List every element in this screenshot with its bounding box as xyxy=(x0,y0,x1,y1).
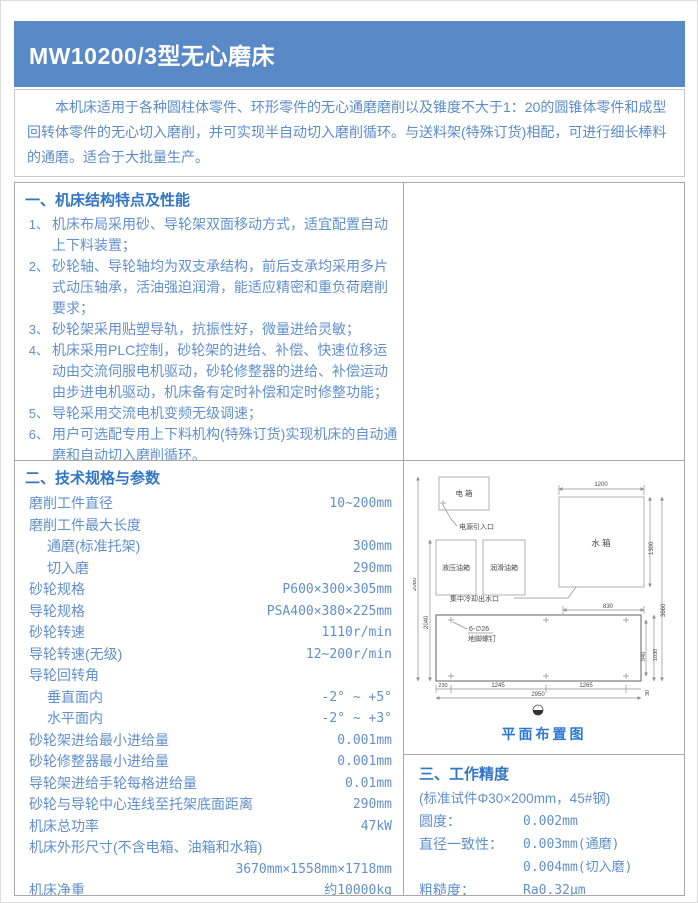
spec-row: 磨削工件直径 10~200mm xyxy=(25,493,392,515)
precision-row: 0.004mm(切入磨) xyxy=(419,856,684,879)
spec-value: PSA400×380×225mm xyxy=(267,601,392,623)
spec-label: 导轮转速(无级) xyxy=(25,644,122,666)
item-number: 6、 xyxy=(25,424,49,461)
item-text: 导轮采用交流电机变频无级调速； xyxy=(52,403,399,424)
spec-label: 导轮规格 xyxy=(25,601,85,623)
lube-tank-label: 润滑油箱 xyxy=(490,563,518,572)
spec-value: 10~200mm xyxy=(329,493,392,515)
spec-row: 导轮回转角 xyxy=(25,665,392,687)
precision-row: 直径一致性： 0.003mm(通磨) xyxy=(419,833,684,856)
precision-value: 0.004mm(切入磨) xyxy=(523,856,632,879)
dim-bolt-left: 230 xyxy=(438,683,447,689)
machine-outline xyxy=(436,615,641,681)
anchor-bolt-label-1: 6-∅26 xyxy=(469,626,489,633)
spec-value: 0.001mm xyxy=(337,751,392,773)
spec-value: -2° ~ +5° xyxy=(322,687,392,709)
dim-machine-height-outer: 1030 xyxy=(653,649,659,661)
hydraulic-tank-label: 液压油箱 xyxy=(442,563,470,572)
page-title: MW10200/3型无心磨床 xyxy=(29,37,275,71)
item-text: 用户可选配专用上下料机构(特殊订货)实现机床的自动通磨和自动切入磨削循环。 xyxy=(52,424,399,461)
list-item: 5、 导轮采用交流电机变频无级调速； xyxy=(25,403,399,424)
precision-label: 圆度： xyxy=(419,810,523,833)
spec-label: 砂轮规格 xyxy=(25,579,85,601)
spec-sheet-page: MW10200/3型无心磨床 本机床适用于各种圆柱体零件、环形零件的无心通磨磨削… xyxy=(0,0,698,903)
spec-value: P600×300×305mm xyxy=(282,579,392,601)
precision-label: 粗糙度： xyxy=(419,879,523,895)
spec-row: 砂轮与导轮中心连线至托架底面距离 290mm xyxy=(25,794,392,816)
spec-row: 水平面内 -2° ~ +3° xyxy=(25,708,392,730)
dim-tank-width: 1200 xyxy=(594,482,608,488)
spec-label: 砂轮修整器最小进给量 xyxy=(25,751,169,773)
spec-label: 砂轮与导轮中心连线至托架底面距离 xyxy=(25,794,253,816)
spec-row: 砂轮转速 1110r/min xyxy=(25,622,392,644)
spec-value: 约10000kg xyxy=(324,880,392,895)
section-precision-heading: 三、工作精度 xyxy=(419,764,684,786)
list-item: 2、 砂轮轴、导轮轴均为双支承结构，前后支承均采用多片式动压轴承，活油强迫润滑，… xyxy=(25,256,399,319)
spec-row: 砂轮规格 P600×300×305mm xyxy=(25,579,392,601)
spec-row: 切入磨 290mm xyxy=(25,558,392,580)
empty-cell xyxy=(404,183,684,461)
spec-label: 砂轮架进给最小进给量 xyxy=(25,730,169,752)
spec-value: 0.01mm xyxy=(345,773,392,795)
spec-row-value-line: 3670mm×1558mm×1718mm xyxy=(25,859,392,881)
dim-outlet-offset: 830 xyxy=(603,604,614,610)
item-number: 2、 xyxy=(25,256,49,319)
spec-value: 290mm xyxy=(353,558,392,580)
list-item: 6、 用户可选配专用上下料机构(特殊订货)实现机床的自动通磨和自动切入磨削循环。 xyxy=(25,424,399,461)
precision-row: 圆度： 0.002mm xyxy=(419,810,684,833)
spec-label: 磨削工件最大长度 xyxy=(25,515,141,537)
precision-value: 0.002mm xyxy=(523,810,578,833)
spec-label: 切入磨 xyxy=(25,558,89,580)
dim-bottom-offset: 30 xyxy=(645,690,651,696)
dim-tank-height: 1300 xyxy=(649,541,655,555)
spec-row: 机床外形尺寸(不含电箱、油箱和水箱) xyxy=(25,837,392,859)
item-text: 机床布局采用砂、导轮架双面移动方式，适宜配置自动上下料装置； xyxy=(52,214,399,256)
power-inlet-label: 电源引入口 xyxy=(459,522,494,531)
spec-label: 砂轮转速 xyxy=(25,622,85,644)
item-text: 砂轮架采用贴塑导轨，抗振性好，微量进给灵敏； xyxy=(52,319,399,340)
spec-value: 0.001mm xyxy=(337,730,392,752)
spec-label: 机床净重 xyxy=(25,880,85,895)
content-table: 一、机床结构特点及性能 1、 机床布局采用砂、导轮架双面移动方式，适宜配置自动上… xyxy=(14,182,685,896)
spec-value: 3670mm×1558mm×1718mm xyxy=(235,859,392,881)
specs-list: 磨削工件直径 10~200mm 磨削工件最大长度 通磨(标准托架) 300mm … xyxy=(25,493,403,895)
precision-note: (标准试件Φ30×200mm，45#钢) xyxy=(419,788,684,810)
floor-plan-cell: 2080 2040 电 箱 电源引入口 液压油箱 润滑油箱 水 箱 xyxy=(404,461,684,755)
precision-row: 粗糙度： Ra0.32μm xyxy=(419,879,684,895)
spec-label: 磨削工件直径 xyxy=(25,493,113,515)
dim-bolt-right: 1265 xyxy=(579,683,593,689)
item-number: 3、 xyxy=(25,319,49,340)
spec-row: 磨削工件最大长度 xyxy=(25,515,392,537)
spec-label: 导轮架进给手轮每格进给量 xyxy=(25,773,197,795)
dim-bolt-mid: 1245 xyxy=(491,683,505,689)
spec-row: 砂轮修整器最小进给量 0.001mm xyxy=(25,751,392,773)
item-text: 机床采用PLC控制，砂轮架的进给、补偿、快速位移运动由交流伺服电机驱动，砂轮修整… xyxy=(52,340,399,403)
item-text: 砂轮轴、导轮轴均为双支承结构，前后支承均采用多片式动压轴承，活油强迫润滑，能适应… xyxy=(52,256,399,319)
item-number: 4、 xyxy=(25,340,49,403)
dim-left-inner: 2040 xyxy=(424,615,430,629)
section-features-heading: 一、机床结构特点及性能 xyxy=(25,190,399,212)
intro-text: 本机床适用于各种圆柱体零件、环形零件的无心通磨磨削以及锥度不大于1：20的圆锥体… xyxy=(27,99,666,165)
spec-value: -2° ~ +3° xyxy=(322,708,392,730)
precision-label xyxy=(419,856,523,879)
cooling-outlet-label: 集中冷却出水口 xyxy=(450,594,499,603)
anchor-bolt-label-2: 地脚螺钉 xyxy=(468,634,496,643)
precision-value: Ra0.32μm xyxy=(523,879,586,895)
dim-machine-height: 940 xyxy=(641,652,647,661)
spec-row: 垂直面内 -2° ~ +5° xyxy=(25,687,392,709)
floor-plan-diagram: 2080 2040 电 箱 电源引入口 液压油箱 润滑油箱 水 箱 xyxy=(413,469,675,721)
spec-value: 12~200r/min xyxy=(306,644,392,666)
item-number: 1、 xyxy=(25,214,49,256)
spec-row: 砂轮架进给最小进给量 0.001mm xyxy=(25,730,392,752)
water-tank-label: 水 箱 xyxy=(591,538,611,548)
list-item: 1、 机床布局采用砂、导轮架双面移动方式，适宜配置自动上下料装置； xyxy=(25,214,399,256)
precision-value: 0.003mm(通磨) xyxy=(523,833,619,856)
spec-label: 通磨(标准托架) xyxy=(25,536,140,558)
spec-row: 通磨(标准托架) 300mm xyxy=(25,536,392,558)
spec-value: 1110r/min xyxy=(322,622,392,644)
page-header: MW10200/3型无心磨床 xyxy=(14,21,685,87)
floor-plan-caption: 平面布置图 xyxy=(404,724,684,744)
dim-left-total: 2080 xyxy=(413,577,418,591)
spec-value: 47kW xyxy=(361,816,392,838)
list-item: 4、 机床采用PLC控制，砂轮架的进给、补偿、快速位移运动由交流伺服电机驱动，砂… xyxy=(25,340,399,403)
dim-total-depth: 3660 xyxy=(661,603,667,617)
precision-label: 直径一致性： xyxy=(419,833,523,856)
spec-row: 导轮架进给手轮每格进给量 0.01mm xyxy=(25,773,392,795)
intro-paragraph: 本机床适用于各种圆柱体零件、环形零件的无心通磨磨削以及锥度不大于1：20的圆锥体… xyxy=(14,89,685,177)
list-item: 3、 砂轮架采用贴塑导轨，抗振性好，微量进给灵敏； xyxy=(25,319,399,340)
spec-label: 垂直面内 xyxy=(25,687,103,709)
section-specs-heading: 二、技术规格与参数 xyxy=(25,468,403,490)
precision-list: 圆度： 0.002mm 直径一致性： 0.003mm(通磨) 0.004mm(切… xyxy=(419,810,684,895)
item-number: 5、 xyxy=(25,403,49,424)
spec-label: 机床外形尺寸(不含电箱、油箱和水箱) xyxy=(25,837,262,859)
spec-row: 机床净重 约10000kg xyxy=(25,880,392,895)
spec-row: 导轮转速(无级) 12~200r/min xyxy=(25,644,392,666)
spec-row: 导轮规格 PSA400×380×225mm xyxy=(25,601,392,623)
spec-value: 290mm xyxy=(353,794,392,816)
spec-label: 导轮回转角 xyxy=(25,665,99,687)
spec-row: 机床总功率 47kW xyxy=(25,816,392,838)
features-list: 1、 机床布局采用砂、导轮架双面移动方式，适宜配置自动上下料装置； 2、 砂轮轴… xyxy=(25,214,399,461)
spec-label: 水平面内 xyxy=(25,708,103,730)
section-precision: 三、工作精度 (标准试件Φ30×200mm，45#钢) 圆度： 0.002mm … xyxy=(404,755,684,895)
section-specs: 二、技术规格与参数 磨削工件直径 10~200mm 磨削工件最大长度 通磨(标准… xyxy=(15,461,404,895)
spec-label: 机床总功率 xyxy=(25,816,99,838)
electric-box-label: 电 箱 xyxy=(455,488,473,498)
spec-value: 300mm xyxy=(353,536,392,558)
section-features: 一、机床结构特点及性能 1、 机床布局采用砂、导轮架双面移动方式，适宜配置自动上… xyxy=(15,183,404,461)
dim-machine-width: 2950 xyxy=(531,692,545,698)
